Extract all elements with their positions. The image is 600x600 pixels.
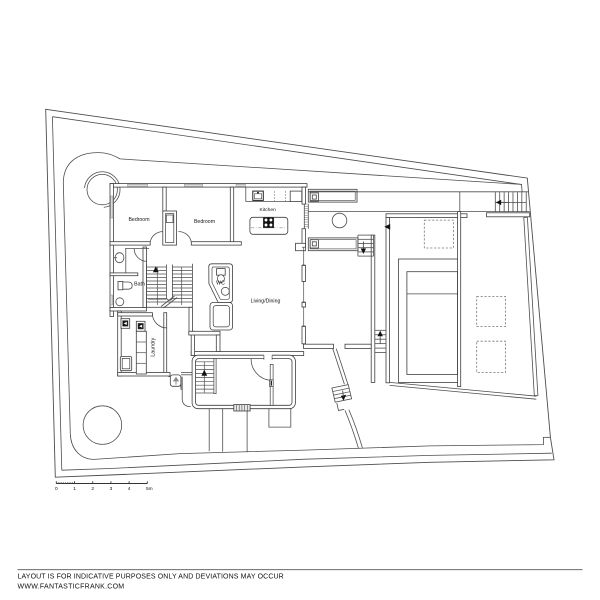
svg-text:Bedroom: Bedroom (128, 217, 149, 223)
svg-text:LAYOUT IS FOR INDICATIVE PURPO: LAYOUT IS FOR INDICATIVE PURPOSES ONLY A… (18, 574, 284, 581)
svg-text:4: 4 (128, 486, 131, 492)
svg-text:Kitchen: Kitchen (260, 207, 277, 213)
svg-text:WC: WC (216, 281, 225, 287)
svg-text:0: 0 (55, 486, 58, 492)
svg-text:Laundry: Laundry (151, 337, 157, 356)
svg-text:5m: 5m (146, 486, 153, 492)
svg-text:3: 3 (110, 486, 113, 492)
svg-text:Living/Dining: Living/Dining (251, 298, 281, 304)
svg-text:1: 1 (73, 486, 76, 492)
svg-text:Bedroom: Bedroom (194, 219, 215, 225)
svg-text:Bath: Bath (134, 282, 145, 288)
svg-text:2: 2 (91, 486, 94, 492)
svg-text:WWW.FANTASTICFRANK.COM: WWW.FANTASTICFRANK.COM (18, 584, 125, 591)
